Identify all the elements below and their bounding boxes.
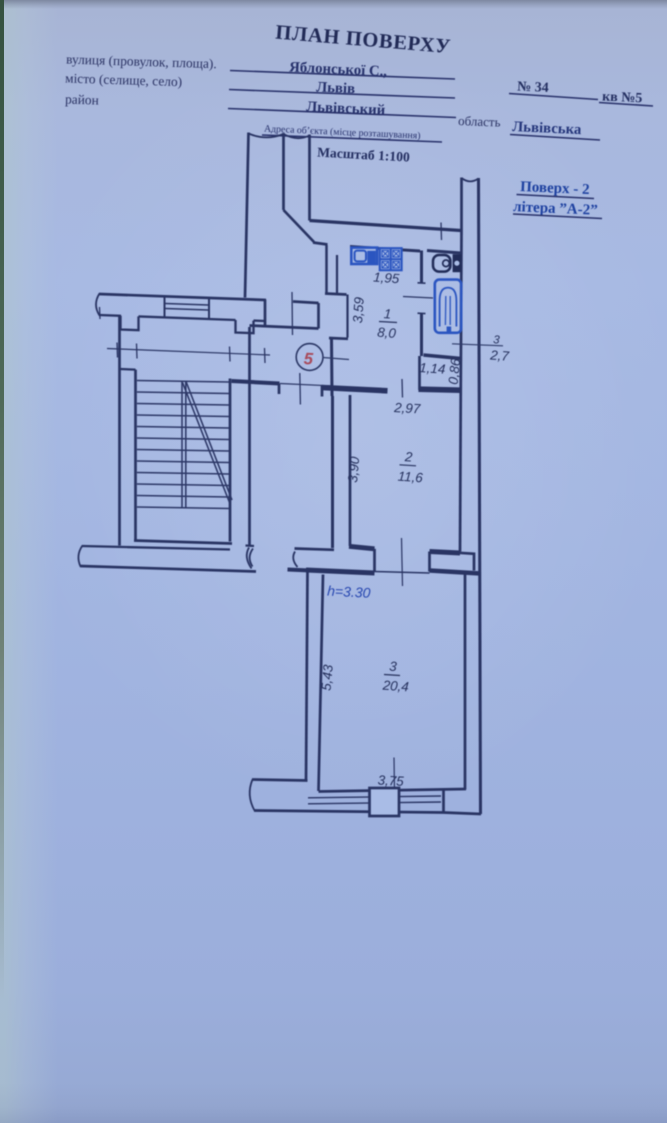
svg-text:область: область [458,113,501,130]
svg-text:3,75: 3,75 [377,773,404,789]
svg-text:район: район [65,92,99,108]
svg-text:1,95: 1,95 [373,270,401,287]
svg-text:Масштаб 1:100: Масштаб 1:100 [317,145,411,165]
svg-text:2,97: 2,97 [393,400,421,416]
svg-text:№ 34: № 34 [517,80,549,96]
svg-text:5: 5 [303,350,314,368]
svg-text:h=3.30: h=3.30 [327,583,371,601]
svg-text:20,4: 20,4 [381,678,409,695]
svg-text:Львівський: Львівський [306,99,386,119]
svg-text:5,43: 5,43 [319,663,336,691]
svg-text:2: 2 [403,449,413,465]
svg-text:8,0: 8,0 [377,325,397,341]
svg-text:1: 1 [383,306,391,321]
svg-text:3: 3 [389,659,398,675]
svg-text:місто (селище, село): місто (селище, село) [65,71,182,90]
svg-text:Яблонської С.,: Яблонської С., [289,60,388,80]
svg-text:0,86: 0,86 [446,357,464,385]
svg-text:1,14: 1,14 [419,360,446,377]
svg-text:3,59: 3,59 [350,296,367,324]
svg-text:3,90: 3,90 [345,455,362,483]
svg-text:ПЛАН ПОВЕРХУ: ПЛАН ПОВЕРХУ [275,22,452,59]
svg-text:11,6: 11,6 [397,469,424,486]
svg-text:вулиця (провулок, площа).: вулиця (провулок, площа). [66,52,217,72]
svg-text:3: 3 [493,334,501,346]
svg-text:2,7: 2,7 [489,347,510,363]
